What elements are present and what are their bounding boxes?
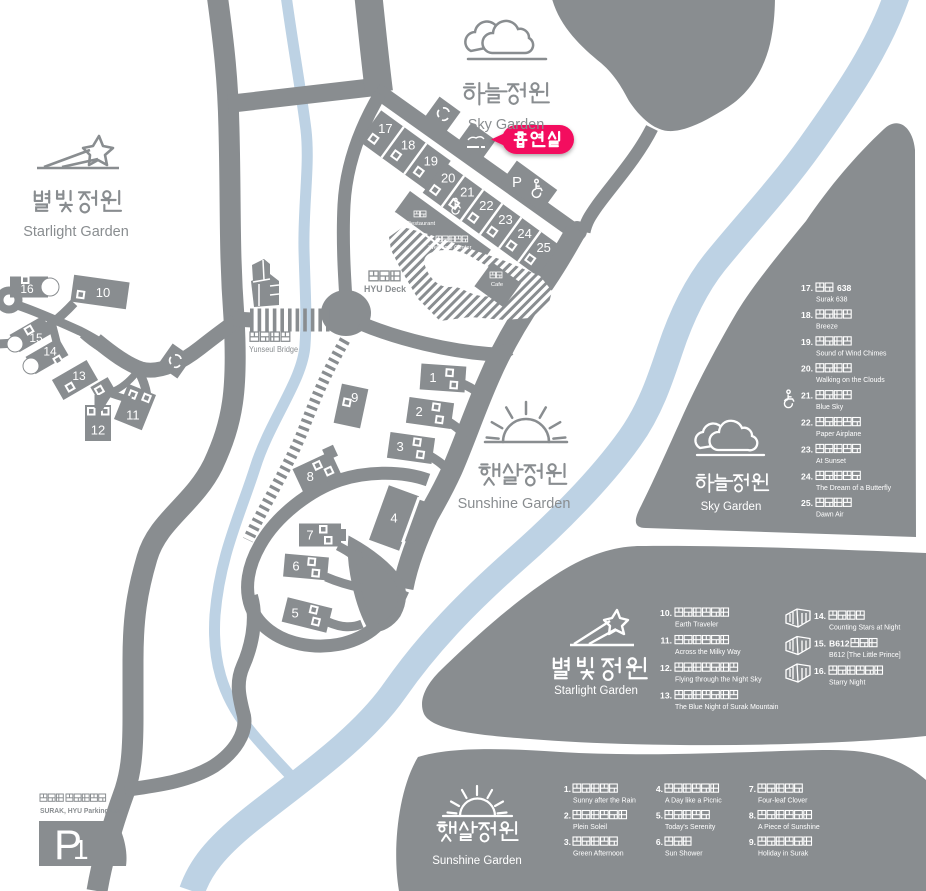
svg-text:21: 21 <box>460 184 474 199</box>
svg-text:Cafe: Cafe <box>491 282 503 288</box>
svg-text:Today's Serenity: Today's Serenity <box>665 824 716 831</box>
svg-text:7: 7 <box>306 528 313 543</box>
svg-text:638: 638 <box>837 283 852 293</box>
svg-text:11: 11 <box>126 407 140 422</box>
svg-text:20: 20 <box>441 171 455 186</box>
svg-text:Green Afternoon: Green Afternoon <box>573 851 624 858</box>
svg-text:A Day like a Picnic: A Day like a Picnic <box>665 798 722 805</box>
svg-text:3.: 3. <box>564 837 571 847</box>
svg-text:Sunshine Garden: Sunshine Garden <box>432 855 522 867</box>
svg-text:10: 10 <box>96 285 110 300</box>
svg-text:14: 14 <box>43 345 57 359</box>
svg-text:3: 3 <box>396 439 403 454</box>
svg-text:10.: 10. <box>660 608 672 618</box>
svg-text:5.: 5. <box>656 811 663 821</box>
svg-text:P: P <box>512 174 522 191</box>
svg-text:B612: B612 <box>829 639 850 649</box>
svg-text:24.: 24. <box>801 471 813 481</box>
svg-text:Breeze: Breeze <box>816 323 838 330</box>
svg-text:At Sunset: At Sunset <box>816 458 846 465</box>
svg-text:Yunseul Bridge: Yunseul Bridge <box>249 344 298 354</box>
svg-text:24: 24 <box>517 226 531 241</box>
svg-text:Four-leaf Clover: Four-leaf Clover <box>758 798 808 805</box>
svg-text:1: 1 <box>73 834 89 865</box>
svg-text:Welcome Center: Welcome Center <box>428 245 471 251</box>
svg-text:1: 1 <box>429 370 436 385</box>
svg-text:2.: 2. <box>564 811 571 821</box>
svg-text:15.: 15. <box>814 639 826 649</box>
svg-text:25.: 25. <box>801 498 813 508</box>
svg-text:12.: 12. <box>660 663 672 673</box>
svg-text:5: 5 <box>291 606 298 621</box>
svg-text:Walking on the Clouds: Walking on the Clouds <box>816 377 885 384</box>
svg-text:2: 2 <box>415 404 422 419</box>
svg-text:4.: 4. <box>656 784 663 794</box>
svg-text:7.: 7. <box>749 784 756 794</box>
svg-text:Counting Stars at Night: Counting Stars at Night <box>829 625 900 632</box>
svg-text:18: 18 <box>401 137 415 152</box>
svg-text:6.: 6. <box>656 837 663 847</box>
svg-text:Dawn Air: Dawn Air <box>816 512 844 519</box>
svg-text:Sunny after the Rain: Sunny after the Rain <box>573 798 636 805</box>
svg-text:A Piece of Sunshine: A Piece of Sunshine <box>758 824 820 831</box>
svg-text:SURAK, HYU Parking Lot: SURAK, HYU Parking Lot <box>40 808 122 815</box>
svg-text:The Blue Night of Surak Mounta: The Blue Night of Surak Mountain <box>675 704 779 711</box>
svg-text:16: 16 <box>20 282 34 296</box>
svg-text:9.: 9. <box>749 837 756 847</box>
svg-text:8: 8 <box>307 469 314 484</box>
svg-text:14.: 14. <box>814 611 826 621</box>
svg-text:17: 17 <box>378 121 392 136</box>
svg-text:15: 15 <box>29 331 43 345</box>
svg-text:13.: 13. <box>660 691 672 701</box>
svg-text:Sun Shower: Sun Shower <box>665 851 703 858</box>
svg-text:Surak 638: Surak 638 <box>816 297 848 304</box>
svg-text:18.: 18. <box>801 310 813 320</box>
svg-text:Plein Soleil: Plein Soleil <box>573 824 608 831</box>
svg-text:25: 25 <box>536 240 550 255</box>
svg-text:Paper Airplane: Paper Airplane <box>816 431 861 438</box>
svg-text:9: 9 <box>351 390 358 405</box>
svg-text:17.: 17. <box>801 283 813 293</box>
svg-text:Sky Garden: Sky Garden <box>468 117 545 133</box>
svg-text:23: 23 <box>498 212 512 227</box>
svg-text:HYU Deck: HYU Deck <box>364 284 407 295</box>
svg-text:Restaurant: Restaurant <box>407 221 436 227</box>
svg-text:4: 4 <box>390 511 397 526</box>
svg-text:23.: 23. <box>801 444 813 454</box>
svg-text:16.: 16. <box>814 666 826 676</box>
svg-text:Across the Milky Way: Across the Milky Way <box>675 649 741 656</box>
svg-text:The Dream of a Butterfly: The Dream of a Butterfly <box>816 485 892 492</box>
svg-text:Starlight Garden: Starlight Garden <box>554 685 638 697</box>
svg-text:19.: 19. <box>801 337 813 347</box>
svg-text:12: 12 <box>91 423 105 438</box>
svg-text:22: 22 <box>479 198 493 213</box>
svg-text:Earth Traveler: Earth Traveler <box>675 622 719 629</box>
svg-text:Sunshine Garden: Sunshine Garden <box>458 496 571 512</box>
svg-text:Starry Night: Starry Night <box>829 680 865 687</box>
svg-text:11.: 11. <box>661 636 672 646</box>
svg-text:Flying through the Night Sky: Flying through the Night Sky <box>675 677 762 684</box>
svg-text:Starlight Garden: Starlight Garden <box>23 224 129 240</box>
svg-text:20.: 20. <box>801 364 813 374</box>
svg-text:6: 6 <box>292 559 299 574</box>
svg-text:13: 13 <box>72 369 86 383</box>
svg-text:8.: 8. <box>749 811 756 821</box>
svg-text:Sky Garden: Sky Garden <box>701 501 762 513</box>
svg-text:22.: 22. <box>801 418 813 428</box>
svg-text:B612 [The Little Prince]: B612 [The Little Prince] <box>829 652 901 659</box>
svg-text:Blue Sky: Blue Sky <box>816 404 844 411</box>
svg-text:21.: 21. <box>801 391 813 401</box>
svg-text:Sound of Wind Chimes: Sound of Wind Chimes <box>816 350 887 357</box>
svg-text:1.: 1. <box>564 784 571 794</box>
svg-text:19: 19 <box>424 154 438 169</box>
svg-text:Holiday in Surak: Holiday in Surak <box>758 851 809 858</box>
